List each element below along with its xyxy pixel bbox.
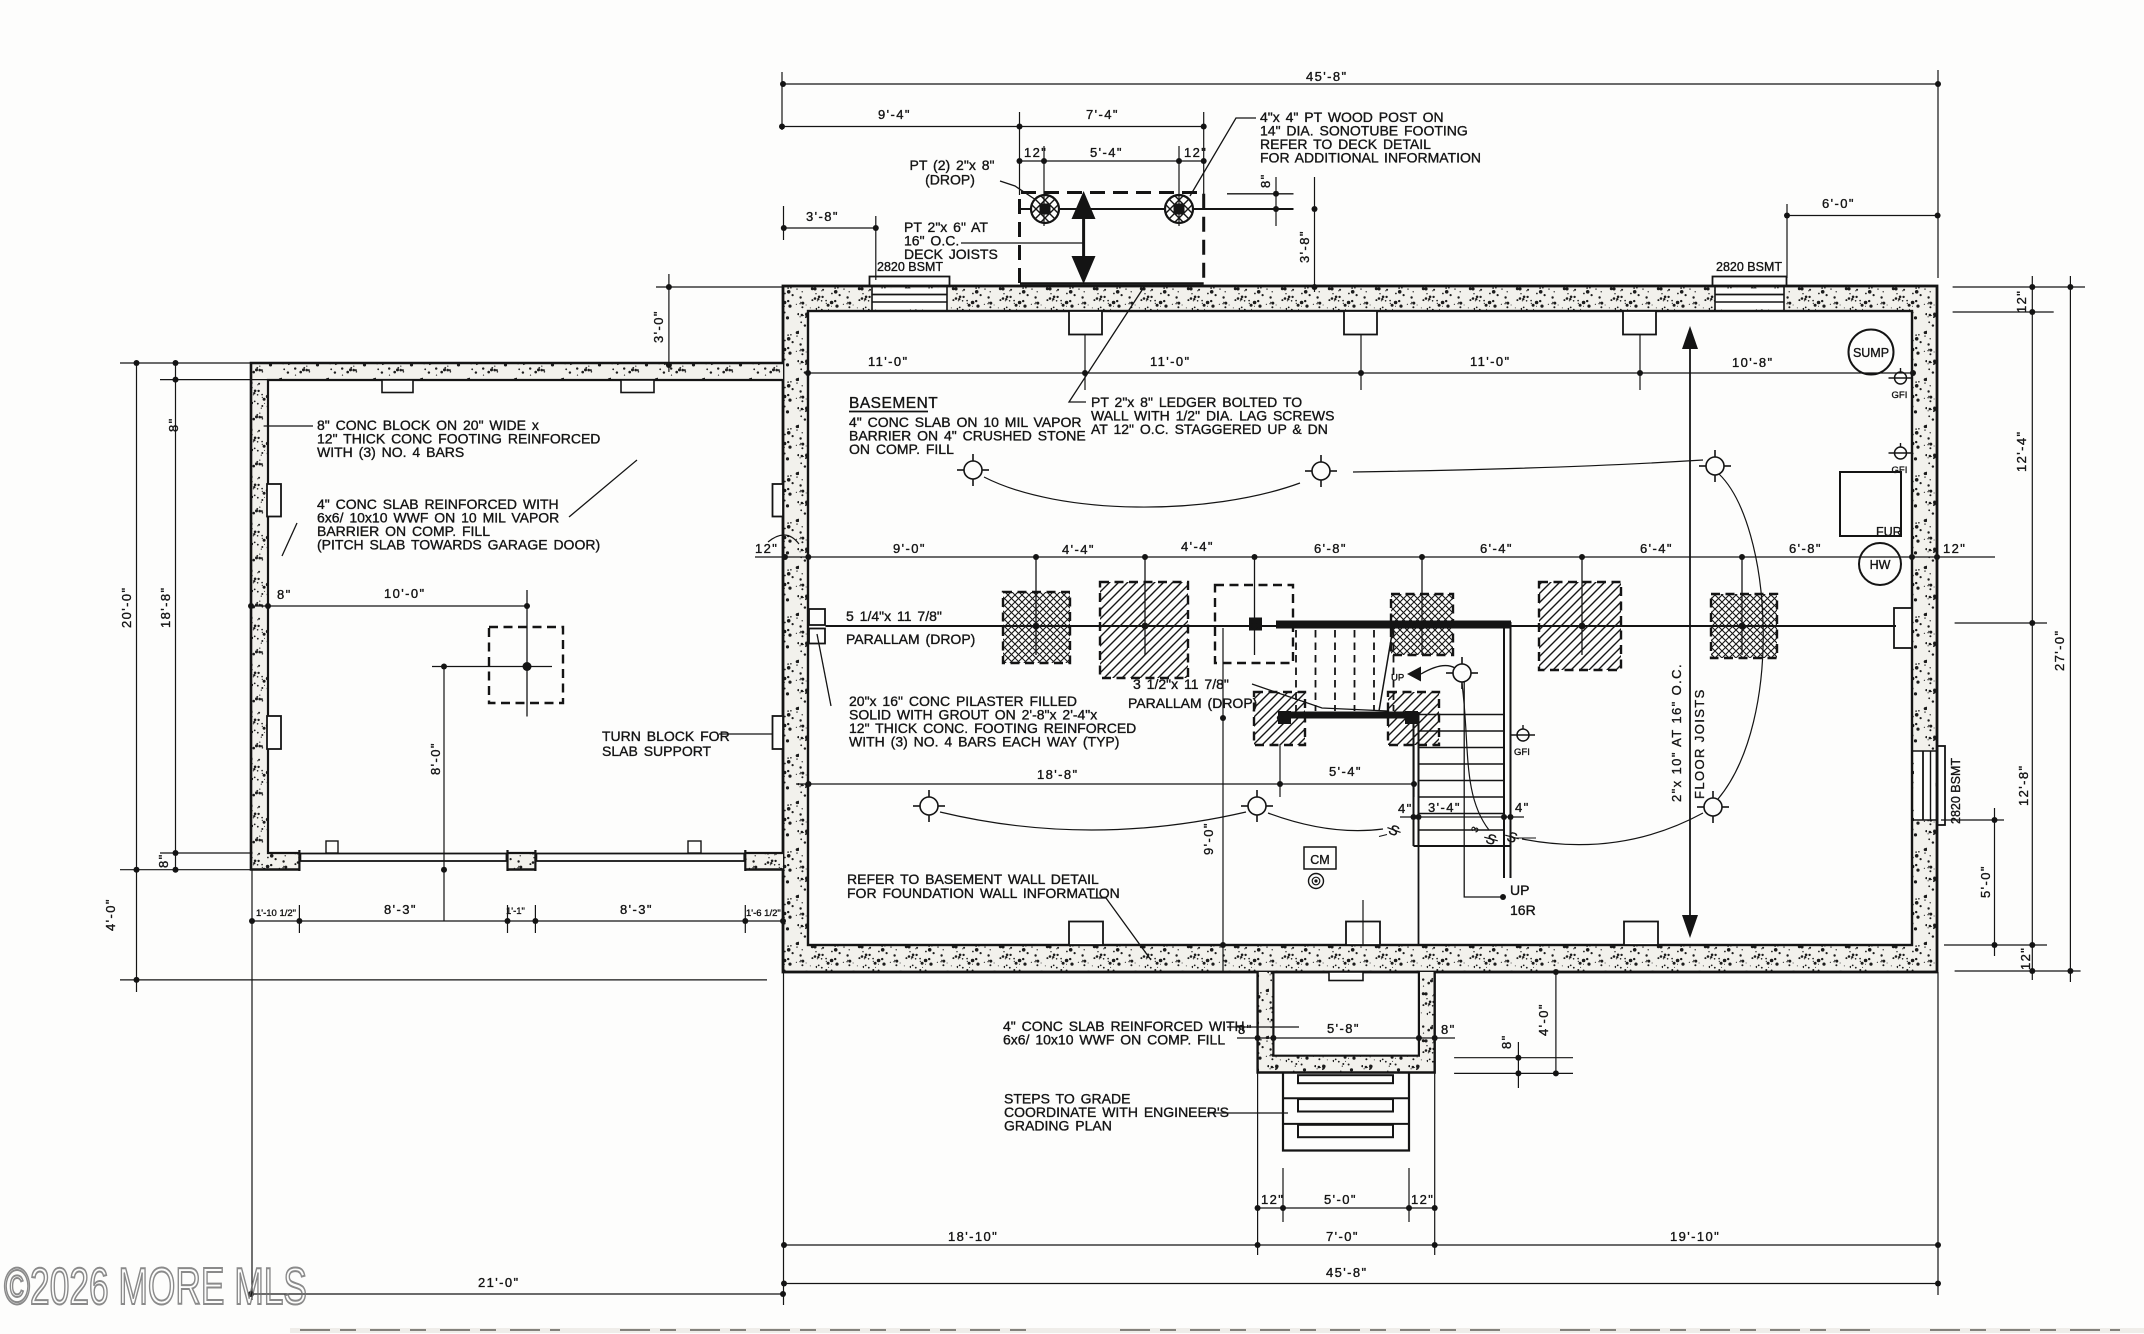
svg-text:20'-0": 20'-0" (119, 586, 134, 628)
svg-text:5'-0": 5'-0" (1978, 865, 1993, 898)
svg-text:6x6/ 10x10 WWF ON COMP. FILL: 6x6/ 10x10 WWF ON COMP. FILL (1003, 1032, 1225, 1048)
svg-text:BASEMENT: BASEMENT (849, 395, 938, 412)
svg-text:4": 4" (1398, 801, 1413, 816)
svg-text:5'-8": 5'-8" (1327, 1021, 1360, 1036)
svg-text:9'-0": 9'-0" (893, 541, 926, 556)
svg-text:5'-0": 5'-0" (1324, 1192, 1357, 1207)
svg-text:9'-0": 9'-0" (1201, 822, 1216, 855)
svg-text:1'-1": 1'-1" (506, 906, 525, 917)
svg-text:2820 BSMT: 2820 BSMT (1716, 260, 1782, 274)
svg-text:10'-0": 10'-0" (384, 586, 426, 601)
svg-text:8": 8" (166, 417, 181, 432)
svg-text:18'-10": 18'-10" (948, 1229, 998, 1244)
svg-text:12'-4": 12'-4" (2014, 430, 2029, 472)
svg-text:19'-10": 19'-10" (1670, 1229, 1720, 1244)
svg-text:AT 12" O.C. STAGGERED UP & DN: AT 12" O.C. STAGGERED UP & DN (1091, 421, 1328, 437)
svg-text:FUR: FUR (1876, 525, 1902, 539)
svg-text:CM: CM (1310, 853, 1329, 867)
svg-text:3'-4": 3'-4" (1428, 800, 1461, 815)
svg-text:©2026 MORE MLS: ©2026 MORE MLS (4, 1258, 307, 1316)
svg-text:12": 12" (1411, 1192, 1434, 1207)
svg-text:GFI: GFI (1892, 465, 1908, 476)
svg-text:12": 12" (1943, 541, 1966, 556)
svg-text:12": 12" (755, 541, 778, 556)
svg-text:7'-0": 7'-0" (1326, 1229, 1359, 1244)
svg-text:5'-4": 5'-4" (1090, 145, 1123, 160)
svg-text:1'-10 1/2": 1'-10 1/2" (256, 908, 296, 919)
svg-text:11'-0": 11'-0" (1470, 354, 1511, 369)
svg-text:12": 12" (1261, 1192, 1284, 1207)
svg-text:(PITCH SLAB TOWARDS GARAGE DOO: (PITCH SLAB TOWARDS GARAGE DOOR) (317, 537, 600, 553)
svg-text:18'-8": 18'-8" (1037, 767, 1079, 782)
svg-text:11'-0": 11'-0" (1150, 354, 1191, 369)
svg-text:4'-0": 4'-0" (1536, 1003, 1551, 1036)
svg-text:8'-3": 8'-3" (620, 902, 653, 917)
svg-text:WITH (3) NO. 4 BARS EACH WAY (: WITH (3) NO. 4 BARS EACH WAY (TYP) (849, 734, 1119, 750)
svg-text:12'-8": 12'-8" (2016, 764, 2031, 806)
svg-text:8'-0": 8'-0" (428, 742, 443, 775)
svg-text:2820 BSMT: 2820 BSMT (1949, 758, 1963, 824)
svg-text:GFI: GFI (1514, 747, 1530, 758)
svg-text:UP: UP (1391, 673, 1404, 684)
svg-text:4'-4": 4'-4" (1181, 539, 1214, 554)
svg-text:(DROP): (DROP) (925, 172, 975, 188)
svg-text:3'-8": 3'-8" (1297, 230, 1312, 263)
svg-text:8'-3": 8'-3" (384, 902, 417, 917)
svg-text:9'-4": 9'-4" (878, 107, 911, 122)
svg-text:6'-8": 6'-8" (1314, 541, 1347, 556)
svg-text:HW: HW (1870, 558, 1891, 572)
svg-text:18'-8": 18'-8" (158, 586, 173, 628)
svg-text:PARALLAM (DROP): PARALLAM (DROP) (846, 631, 975, 647)
svg-text:4": 4" (1515, 800, 1530, 815)
svg-text:2"x 10" AT 16" O.C.: 2"x 10" AT 16" O.C. (1669, 663, 1684, 802)
svg-text:2820 BSMT: 2820 BSMT (877, 260, 943, 274)
svg-text:45'-8": 45'-8" (1306, 69, 1348, 84)
svg-text:12": 12" (2014, 290, 2029, 313)
svg-text:FOR ADDITIONAL INFORMATION: FOR ADDITIONAL INFORMATION (1260, 150, 1481, 166)
svg-text:10'-8": 10'-8" (1732, 355, 1774, 370)
svg-text:4'-0": 4'-0" (103, 898, 118, 931)
svg-text:SLAB SUPPORT: SLAB SUPPORT (602, 743, 712, 759)
svg-text:6'-4": 6'-4" (1480, 541, 1513, 556)
svg-text:7'-4": 7'-4" (1086, 107, 1119, 122)
svg-text:12": 12" (2018, 947, 2033, 970)
svg-text:GRADING PLAN: GRADING PLAN (1004, 1118, 1112, 1134)
svg-text:SUMP: SUMP (1853, 346, 1889, 360)
svg-text:ON COMP. FILL: ON COMP. FILL (849, 441, 954, 457)
svg-text:3'-0": 3'-0" (651, 310, 666, 343)
svg-text:16R: 16R (1510, 902, 1536, 918)
svg-text:6'-8": 6'-8" (1789, 541, 1822, 556)
svg-text:21'-0": 21'-0" (478, 1275, 520, 1290)
svg-text:8": 8" (1258, 173, 1273, 188)
svg-text:8": 8" (156, 853, 171, 868)
svg-text:1'-6 1/2": 1'-6 1/2" (746, 908, 781, 919)
svg-text:3'-8": 3'-8" (806, 209, 839, 224)
svg-text:8": 8" (277, 587, 292, 602)
svg-text:8": 8" (1499, 1034, 1514, 1049)
svg-text:UP: UP (1510, 882, 1529, 898)
svg-text:11'-0": 11'-0" (868, 354, 909, 369)
svg-text:4'-4": 4'-4" (1062, 542, 1095, 557)
svg-text:12": 12" (1184, 145, 1207, 160)
svg-text:GFI: GFI (1892, 390, 1908, 401)
svg-text:5 1/4"x 11 7/8": 5 1/4"x 11 7/8" (846, 608, 942, 624)
svg-text:6'-4": 6'-4" (1640, 541, 1673, 556)
svg-text:FLOOR JOISTS: FLOOR JOISTS (1692, 688, 1707, 799)
svg-text:45'-8": 45'-8" (1326, 1265, 1368, 1280)
svg-text:FOR FOUNDATION WALL INFORMATIO: FOR FOUNDATION WALL INFORMATION (847, 885, 1120, 901)
svg-text:6'-0": 6'-0" (1822, 196, 1855, 211)
svg-text:8": 8" (1441, 1022, 1456, 1037)
svg-text:TURN BLOCK FOR: TURN BLOCK FOR (602, 728, 730, 744)
svg-text:3 1/2"x 11 7/8": 3 1/2"x 11 7/8" (1133, 676, 1229, 692)
svg-text:WITH (3) NO. 4 BARS: WITH (3) NO. 4 BARS (317, 444, 464, 460)
svg-text:27'-0": 27'-0" (2052, 629, 2067, 671)
svg-text:PARALLAM (DROP): PARALLAM (DROP) (1128, 695, 1257, 711)
svg-text:5'-4": 5'-4" (1329, 764, 1362, 779)
